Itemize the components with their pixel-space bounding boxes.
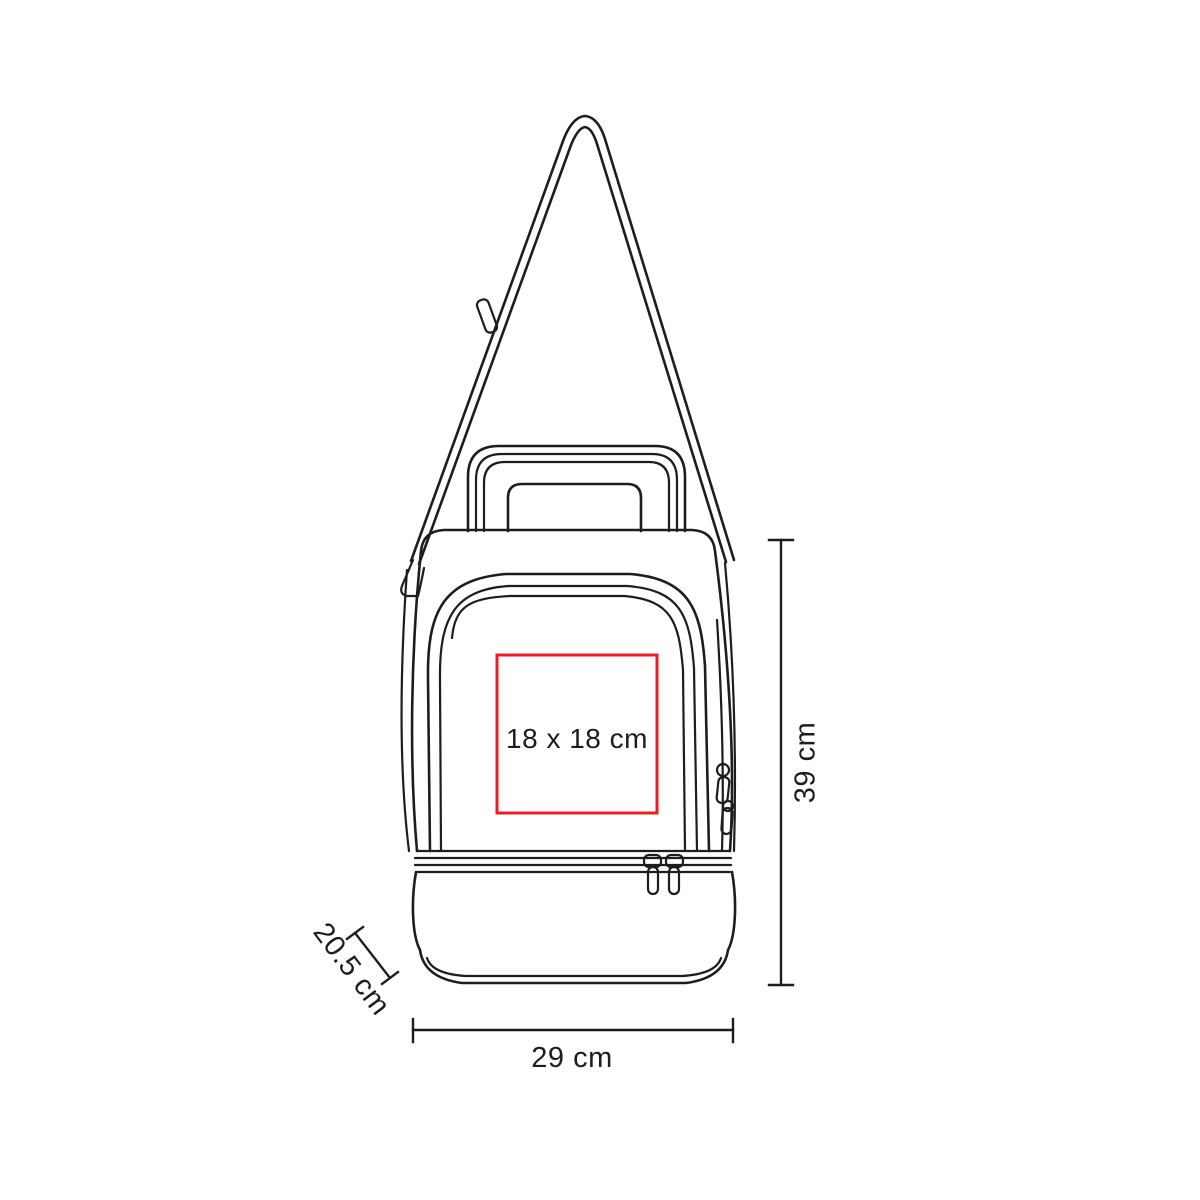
handle-grip-pad [508, 484, 641, 531]
strap-side-run-left [402, 570, 409, 851]
carry-handle-outer [468, 446, 685, 531]
depth-dimension-cap-top [347, 927, 363, 939]
imprint-size-label: 18 x 18 cm [497, 655, 657, 813]
bag-line-art [0, 0, 1200, 1200]
bottom-compartment [413, 872, 735, 983]
width-dimension-label: 29 cm [492, 1042, 652, 1075]
height-dimension-label: 39 cm [790, 693, 823, 833]
bag-outline-group [401, 116, 735, 983]
depth-dimension-cap-bottom [382, 972, 398, 984]
bottom-compartment-seam [427, 958, 721, 976]
shoulder-strap-inner-edge [419, 127, 726, 564]
carry-handle-middle [476, 454, 677, 531]
product-dimension-diagram: 18 x 18 cm 39 cm 29 cm 20.5 cm [0, 0, 1200, 1200]
